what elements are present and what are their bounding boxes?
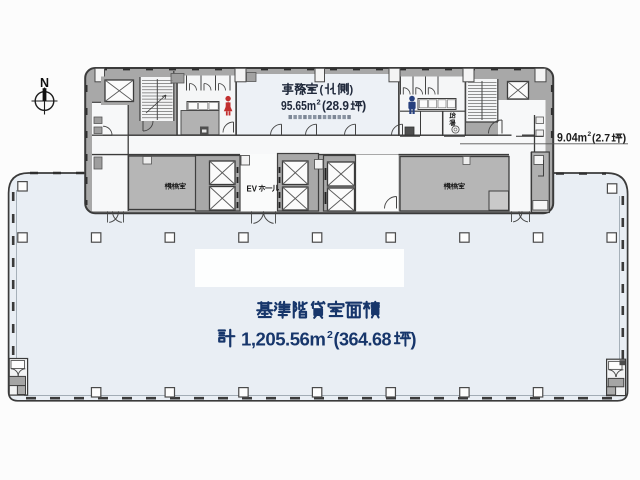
svg-text:N: N [40, 76, 49, 90]
svg-text:(28.9: (28.9 [322, 98, 349, 113]
svg-text:): ) [350, 84, 354, 96]
svg-text:9.04m: 9.04m [557, 133, 587, 145]
svg-text:2: 2 [327, 329, 333, 341]
svg-text:): ) [362, 99, 366, 113]
svg-text:2: 2 [317, 98, 321, 107]
svg-text:95.65m: 95.65m [281, 98, 316, 113]
svg-text:(364.68: (364.68 [334, 330, 392, 350]
svg-text:1,205.56m: 1,205.56m [241, 329, 325, 350]
svg-text:): ) [411, 330, 417, 350]
svg-text:2: 2 [588, 131, 592, 138]
svg-text:(: ( [320, 84, 324, 96]
svg-text:): ) [623, 133, 627, 145]
svg-text:EV: EV [247, 185, 258, 194]
svg-text:(2.7: (2.7 [592, 133, 610, 145]
